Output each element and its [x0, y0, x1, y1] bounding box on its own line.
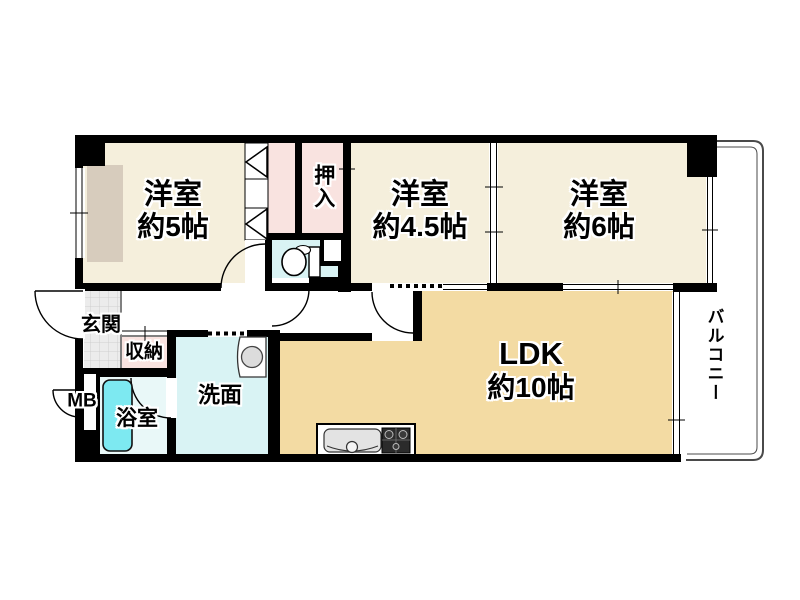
room-label-balcony: バルコニー — [704, 308, 723, 403]
toilet-door-arc — [272, 289, 309, 326]
room-label-bedroom5: 洋室約5帖 — [137, 179, 209, 243]
ldk-door-arc — [372, 292, 413, 333]
room-label-storage: 収納 — [125, 341, 163, 362]
floor-plan: 洋室約5帖 押入 洋室約4.5帖 洋室約6帖 玄関 収納 MB 浴室 洗面 LD… — [0, 0, 800, 600]
closet-left-floor — [268, 143, 295, 233]
room-label-meter-box: MB — [67, 390, 97, 411]
room-label-washroom: 洗面 — [198, 384, 242, 409]
toilet-icon — [282, 246, 320, 278]
room-label-bedroom6: 洋室約6帖 — [563, 179, 635, 243]
room-label-bath: 浴室 — [116, 407, 158, 431]
room-label-oshiire: 押入 — [311, 164, 335, 210]
bay-window-shade — [87, 165, 123, 262]
stove-icon — [382, 428, 410, 453]
room-label-entrance: 玄関 — [81, 314, 121, 336]
floor-plan-drawing — [0, 0, 800, 600]
toilet-shelf — [324, 240, 341, 261]
room-label-ldk: LDK約10帖 — [487, 337, 574, 403]
washing-machine-icon — [238, 337, 267, 377]
folding-closet-doors — [245, 143, 268, 284]
kitchen-counter — [317, 424, 415, 455]
kitchen-sink-icon — [324, 429, 381, 453]
room-label-bedroom45: 洋室約4.5帖 — [373, 179, 468, 243]
